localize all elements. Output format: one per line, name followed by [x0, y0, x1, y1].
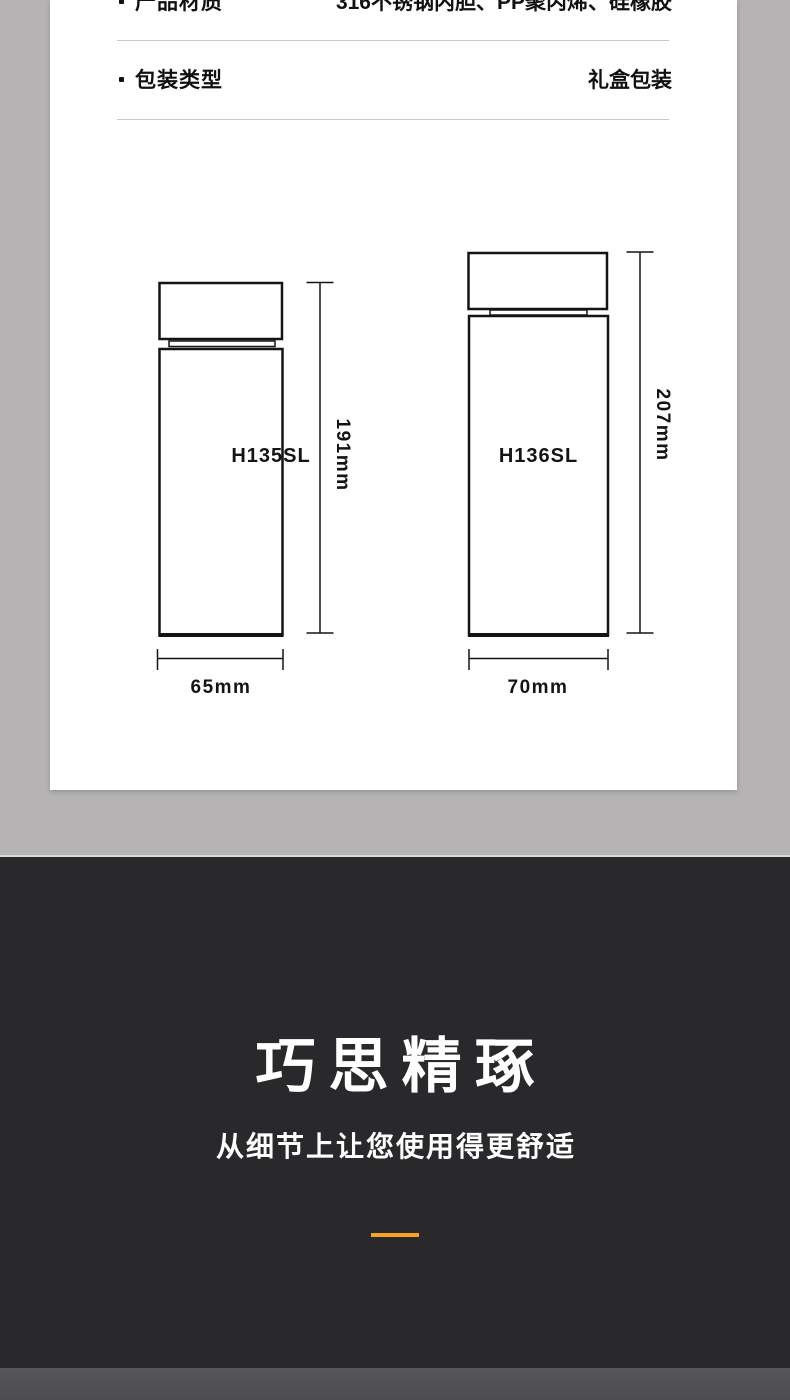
height-dimension: 191mm: [307, 283, 354, 634]
width-dimension: 70mm: [469, 649, 608, 698]
accent-divider: [371, 1233, 419, 1237]
bottle-neck-ring: [169, 341, 275, 347]
bottle-size-diagram: H135SL 191mm 65mm: [50, 0, 737, 790]
bottle-model-label: H136SL: [499, 445, 578, 467]
width-dimension-label: 65mm: [191, 677, 252, 698]
next-section-strip: [0, 1368, 790, 1400]
bottle-cap: [160, 283, 283, 339]
height-dimension: 207mm: [627, 252, 674, 633]
feature-section-subtitle: 从细节上让您使用得更舒适: [0, 1131, 790, 1163]
bottle-body: [160, 349, 283, 635]
feature-section: 巧思精琢 从细节上让您使用得更舒适: [0, 857, 790, 1368]
width-dimension: 65mm: [158, 649, 284, 698]
height-dimension-label: 191mm: [332, 419, 353, 492]
height-dimension-label: 207mm: [652, 389, 673, 462]
bottle-right: H136SL 207mm 70mm: [468, 252, 673, 698]
spec-card: 产品材质 316不锈钢内胆、PP聚丙烯、硅橡胶 包装类型 礼盒包装 H135SL: [50, 0, 737, 790]
bottle-body: [469, 316, 608, 635]
bottle-cap: [469, 253, 608, 309]
product-detail-page: 产品材质 316不锈钢内胆、PP聚丙烯、硅橡胶 包装类型 礼盒包装 H135SL: [0, 0, 790, 1400]
bottle-left: H135SL 191mm 65mm: [158, 283, 354, 699]
bottle-neck-ring: [490, 310, 587, 315]
feature-section-title: 巧思精琢: [0, 1035, 790, 1099]
bottle-model-label: H135SL: [231, 445, 310, 467]
width-dimension-label: 70mm: [508, 677, 569, 698]
